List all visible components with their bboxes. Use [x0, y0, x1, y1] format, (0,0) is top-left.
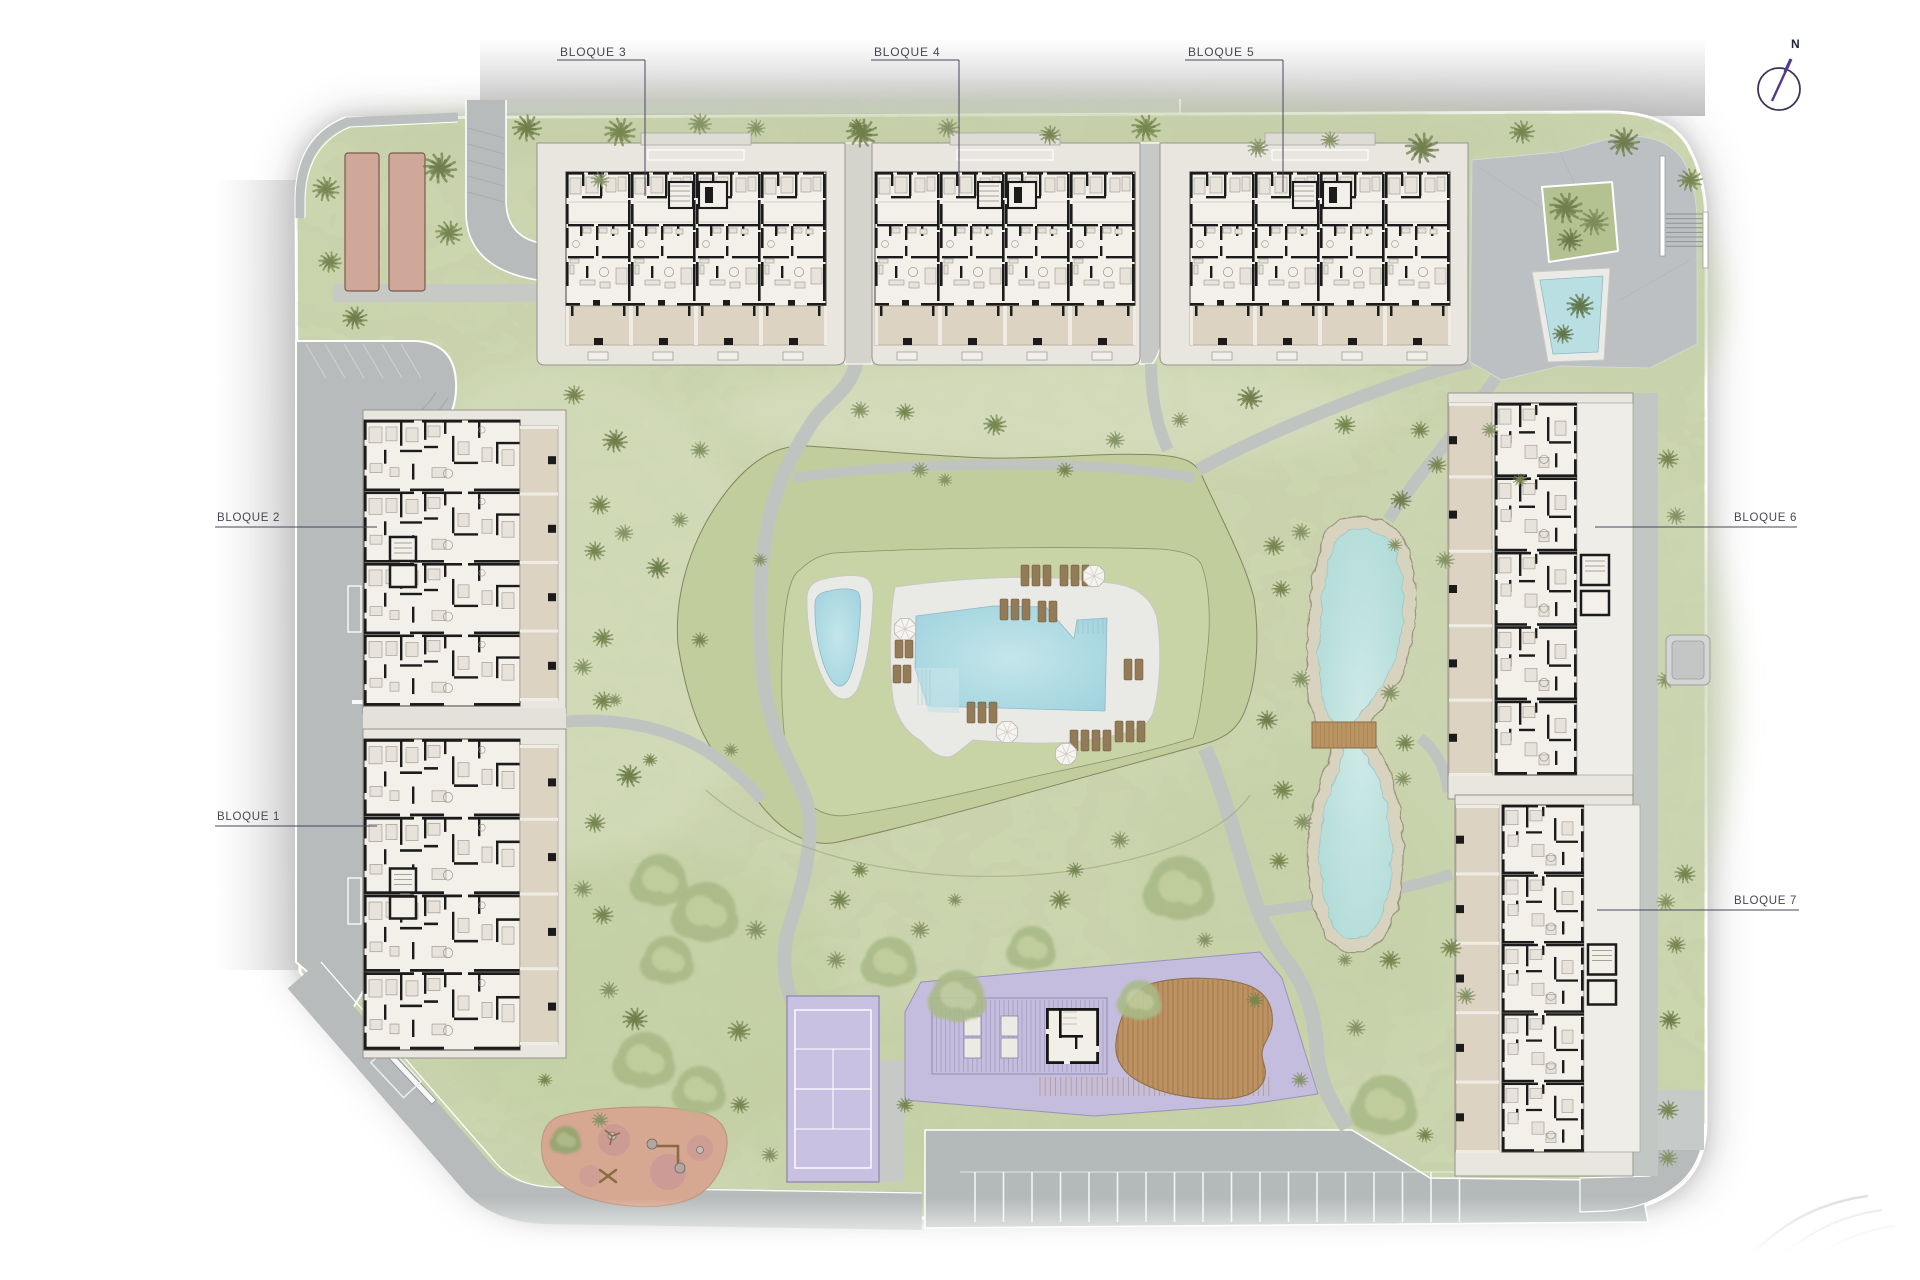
svg-text:BLOQUE 4: BLOQUE 4 [874, 45, 940, 59]
svg-text:N: N [1791, 37, 1800, 51]
svg-text:BLOQUE 2: BLOQUE 2 [217, 512, 280, 524]
svg-text:BLOQUE 6: BLOQUE 6 [1734, 512, 1797, 524]
svg-text:BLOQUE 5: BLOQUE 5 [1188, 45, 1254, 59]
svg-text:BLOQUE 7: BLOQUE 7 [1734, 895, 1797, 907]
svg-text:BLOQUE 1: BLOQUE 1 [217, 811, 280, 823]
svg-text:BLOQUE 3: BLOQUE 3 [560, 45, 626, 59]
